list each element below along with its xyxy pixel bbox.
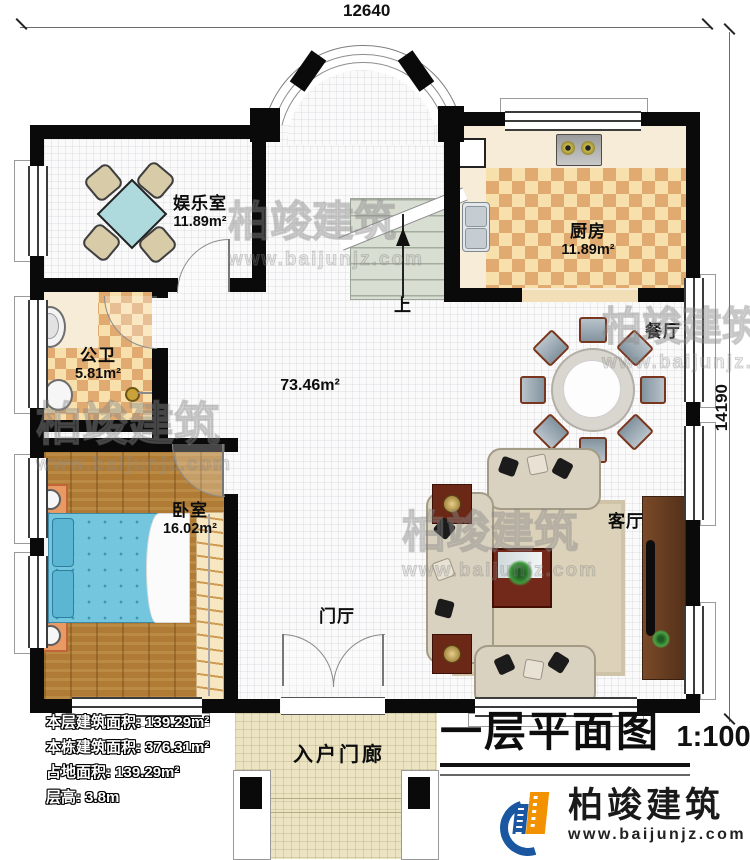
- bed-pillow: [52, 570, 74, 618]
- dining-chair: [579, 317, 607, 343]
- stair-direction-line: [402, 214, 404, 298]
- title-underline-thin: [440, 774, 690, 776]
- brand-name: 柏竣建筑: [568, 788, 746, 823]
- dining-table-top: [563, 360, 621, 418]
- floor-plan-canvas: 12640 14190: [0, 0, 750, 860]
- stat-floor-area: 本层建筑面积: 139.29m²: [46, 710, 209, 735]
- wall-segment: [30, 278, 178, 292]
- door-leaf: [222, 444, 224, 496]
- window: [28, 458, 48, 538]
- page-title: 一层平面图: [440, 708, 660, 755]
- window: [28, 556, 48, 648]
- porch-column-core: [240, 777, 262, 809]
- side-table: [432, 484, 472, 524]
- foyer-door-threshold: [281, 697, 385, 715]
- room-label-dining: 餐厅: [628, 322, 698, 342]
- wall-segment: [228, 278, 266, 292]
- towel-bar-knob: [125, 387, 140, 402]
- porch-step-line: [265, 812, 405, 813]
- sofa-pillow: [522, 658, 544, 680]
- wall-segment: [444, 126, 460, 302]
- stat-building-area: 本栋建筑面积: 376.31m²: [46, 735, 209, 760]
- stove-burner: [581, 141, 595, 155]
- bed-pillow: [52, 518, 74, 567]
- plant-icon: [652, 630, 670, 648]
- table-ornament-icon: [443, 645, 461, 663]
- stat-floor-height: 层高: 3.8m: [46, 785, 209, 810]
- stair-up-label: 上: [390, 296, 416, 316]
- brand-text-block: 柏竣建筑 www.baijunjz.com: [568, 788, 746, 844]
- door-leaf: [382, 634, 384, 686]
- door-leaf: [228, 239, 230, 292]
- hall-area-label: 73.46m²: [255, 377, 365, 396]
- wardrobe-rail: [208, 514, 210, 696]
- side-table: [432, 634, 472, 674]
- dimension-right: 14190: [712, 384, 732, 431]
- room-label-living: 客厅: [588, 512, 664, 532]
- room-label-porch: 入户门廊: [276, 744, 402, 768]
- room-label-foyer: 门厅: [298, 607, 376, 627]
- window: [684, 606, 704, 694]
- tv-icon: [646, 540, 655, 636]
- drawing-scale: 1:100: [676, 721, 750, 753]
- sink-basin: [465, 228, 487, 249]
- dining-chair: [640, 376, 666, 404]
- title-underline-thick: [440, 763, 690, 767]
- window: [28, 166, 48, 256]
- dimension-top: 12640: [343, 1, 390, 21]
- dining-chair: [520, 376, 546, 404]
- brand-logo-icon: [500, 788, 558, 852]
- sink-basin: [465, 206, 487, 227]
- kitchen-corner-notch: [460, 138, 486, 168]
- door-leaf: [282, 634, 284, 686]
- wall-segment: [444, 288, 522, 302]
- dimension-line-right: [729, 32, 730, 722]
- wall-segment: [30, 420, 168, 432]
- window: [28, 300, 48, 408]
- porch-column-core: [408, 777, 430, 809]
- stove-burner: [561, 141, 575, 155]
- sofa-pillow: [526, 453, 549, 476]
- table-ornament-icon: [443, 495, 461, 513]
- window: [684, 426, 704, 520]
- stair-arrow-up-icon: [396, 228, 410, 246]
- dimension-tick: [701, 18, 713, 30]
- toilet-icon: [44, 379, 73, 411]
- stat-footprint-area: 占地面积: 139.29m²: [46, 760, 209, 785]
- window: [505, 111, 641, 131]
- brand-website: www.baijunjz.com: [568, 826, 746, 844]
- room-label-bedroom: 卧室 16.02m²: [128, 501, 252, 538]
- kitchen-door-threshold: [522, 290, 638, 302]
- brand-logo: 柏竣建筑 www.baijunjz.com: [500, 788, 746, 852]
- porch-step-line: [265, 798, 405, 799]
- room-label-bathroom: 公卫 5.81m²: [56, 346, 140, 383]
- drawing-title-block: 一层平面图 1:100: [440, 698, 750, 776]
- plant-icon: [507, 560, 533, 586]
- room-label-entertainment: 娱乐室 11.89m²: [135, 194, 265, 231]
- dimension-line-top: [20, 27, 710, 28]
- wardrobe: [196, 512, 224, 700]
- area-stats: 本层建筑面积: 139.29m² 本栋建筑面积: 376.31m² 占地面积: …: [46, 710, 209, 810]
- room-label-kitchen: 厨房 11.89m²: [528, 222, 648, 259]
- wall-segment: [30, 125, 266, 139]
- dimension-tick: [15, 18, 27, 30]
